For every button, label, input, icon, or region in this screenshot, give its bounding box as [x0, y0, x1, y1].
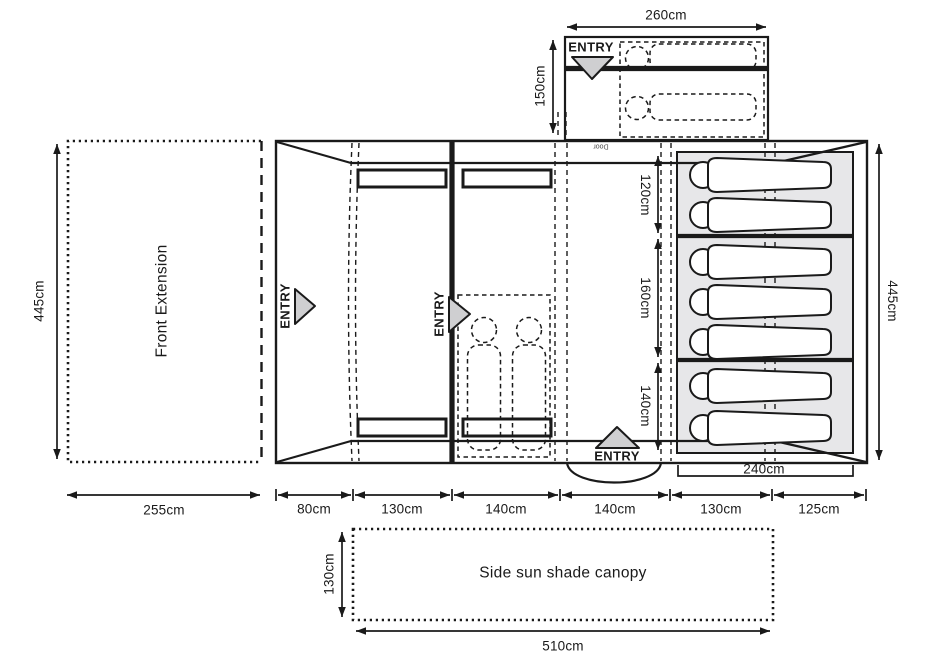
floor-section-dim-6: 125cm — [798, 502, 840, 516]
inner-entry-label: ENTRY — [433, 291, 446, 337]
front-extension-label: Front Extension — [154, 244, 170, 357]
door-swing-arc — [567, 463, 661, 483]
side-entry-label: ENTRY — [279, 283, 292, 329]
bedroom-section-dim-1: 120cm — [638, 174, 652, 216]
sleeper-icon — [690, 245, 831, 279]
sleeper-icon — [690, 369, 831, 403]
canopy-label: Side sun shade canopy — [479, 565, 646, 581]
floor-section-dim-5: 130cm — [700, 502, 742, 516]
entry-triangles — [295, 57, 639, 448]
canopy-depth-dim: 130cm — [322, 553, 336, 595]
bedroom-width-dim: 240cm — [743, 462, 785, 476]
floor-section-dim-2: 130cm — [381, 502, 423, 516]
floor-section-dim-1: 80cm — [297, 502, 331, 516]
annex-width-dim: 260cm — [645, 8, 687, 22]
sleeper-icon — [690, 285, 831, 319]
entry-arrow-right-icon — [449, 297, 470, 332]
canopy-width-dim: 510cm — [542, 639, 584, 653]
door-label: Door — [593, 143, 608, 150]
sleeper-icon — [690, 158, 831, 192]
front-entry-label: ENTRY — [594, 450, 640, 463]
floor-section-dim-3: 140cm — [485, 502, 527, 516]
bedroom-section-dim-3: 140cm — [638, 385, 652, 427]
tent-floorplan-diagram: 260cm 150cm ENTRY Door 445cm Front Exten… — [0, 0, 936, 662]
sleeper-icon — [690, 198, 831, 232]
front-extension-height-dim: 445cm — [32, 280, 46, 322]
tent-height-dim: 445cm — [885, 280, 899, 322]
annex-depth-dim: 150cm — [533, 65, 547, 107]
annex-entry-label: ENTRY — [568, 41, 614, 54]
floor-section-dim-4: 140cm — [594, 502, 636, 516]
entry-arrow-right-icon — [295, 289, 315, 324]
entry-arrow-up-icon — [596, 427, 639, 448]
sleeper-icon — [690, 411, 831, 445]
floorplan-drawing — [0, 0, 936, 662]
sleeper-icon — [690, 325, 831, 359]
sleeper-icon — [626, 94, 757, 120]
front-extension-width-dim: 255cm — [143, 503, 185, 517]
bedroom-section-dim-2: 160cm — [638, 277, 652, 319]
